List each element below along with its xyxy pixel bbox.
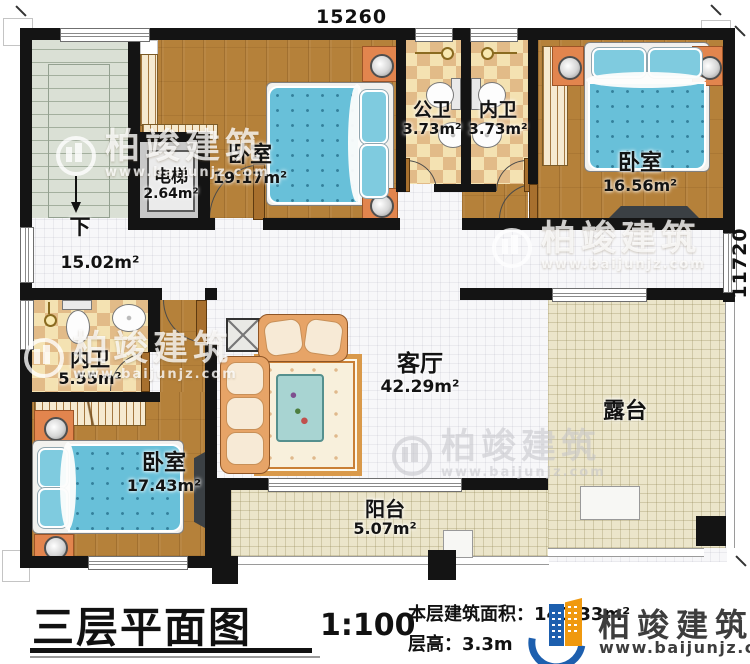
window-top-stairs xyxy=(60,28,150,42)
slider-living-balcony xyxy=(268,478,462,492)
wall-bedroom3-right xyxy=(205,344,217,556)
floor-height-label: 层高： xyxy=(408,634,462,655)
room-name: 公卫 xyxy=(398,100,466,121)
room-name: 卧室 xyxy=(190,144,310,169)
room-name: 内卫 xyxy=(465,100,531,121)
wall-hall-top-b xyxy=(263,218,400,230)
room-area: 5.55m² xyxy=(38,370,142,388)
post-balcony-mid xyxy=(428,550,456,580)
bedroom2-sheet-fold xyxy=(586,72,706,88)
room-name: 内卫 xyxy=(38,348,142,370)
balcony-label: 阳台 5.07m² xyxy=(328,498,442,538)
towel-ring xyxy=(441,47,454,60)
stair-rail xyxy=(48,64,110,218)
bedroom2-door xyxy=(529,184,538,220)
wall-living-bottom-b xyxy=(460,478,548,490)
floor-height-line: 层高：3.3m xyxy=(408,630,513,656)
bedroom2-label: 卧室 16.56m² xyxy=(575,152,705,195)
coffee-table xyxy=(276,374,324,442)
room-name: 阳台 xyxy=(328,498,442,520)
lamp-icon xyxy=(558,56,582,80)
leader-tick xyxy=(734,25,745,36)
terrace-label: 露台 xyxy=(588,400,662,425)
living-room-label: 客厅 42.29m² xyxy=(360,352,480,397)
room-name: 电梯 xyxy=(130,168,212,187)
room-area: 42.29m² xyxy=(360,378,480,397)
bedroom1-pillow xyxy=(360,90,388,144)
bedroom3-door xyxy=(196,300,207,344)
stairs-down-label: 下 xyxy=(66,216,94,240)
wall-bedroom2-bottom xyxy=(462,218,735,230)
window-bedroom3-bottom xyxy=(88,556,188,570)
plan-title: 三层平面图 xyxy=(32,594,252,655)
wall-ensuite-mid-bottom xyxy=(20,392,160,402)
ensuite-mid-door xyxy=(141,352,150,392)
window-top-ensuitebath xyxy=(470,28,518,42)
post-balcony-left xyxy=(212,556,238,584)
leader-tick xyxy=(710,4,721,15)
bedroom1-nightstand xyxy=(362,46,398,82)
window-left-ensuite xyxy=(20,300,34,350)
wall-bath-bottom-a xyxy=(434,184,462,192)
toilet-tank xyxy=(62,300,92,310)
lamp-icon xyxy=(44,417,68,441)
terrace-step xyxy=(580,486,640,520)
slider-living-terrace xyxy=(552,288,647,302)
wall-midrow-c xyxy=(460,288,552,300)
room-area: 2.64m² xyxy=(130,187,212,203)
dimension-top: 15260 xyxy=(316,6,387,28)
window-left-hall xyxy=(20,227,34,283)
elevator-label: 电梯 2.64m² xyxy=(130,168,212,203)
towel-ring xyxy=(481,47,494,60)
floor-area-line: 本层建筑面积：140.33m² xyxy=(408,600,630,626)
room-area: 5.07m² xyxy=(328,520,442,538)
room-area: 3.73m² xyxy=(465,121,531,138)
bedroom3-nightstand xyxy=(34,410,74,444)
wall-midrow-d xyxy=(645,288,735,300)
room-area: 17.43m² xyxy=(108,477,220,495)
public-bath-label: 公卫 3.73m² xyxy=(398,100,466,138)
wall-ensuite-mid-right xyxy=(148,300,160,352)
balcony-parapet xyxy=(231,556,549,565)
hallway-area-label: 15.02m² xyxy=(40,254,160,273)
floor-plan: 15260 11720 xyxy=(0,0,750,664)
bedroom3-label: 卧室 17.43m² xyxy=(108,452,220,495)
post-terrace-corner xyxy=(696,516,726,546)
ensuite-mid-label: 内卫 5.55m² xyxy=(38,348,142,388)
towel-bar xyxy=(415,52,443,54)
ensuite-mid-toilet xyxy=(66,310,90,344)
company-logo-building-blue xyxy=(549,604,564,646)
towel-bar xyxy=(48,302,50,314)
room-name: 卧室 xyxy=(108,452,220,477)
plan-scale: 1:100 xyxy=(320,608,416,643)
lamp-icon xyxy=(370,54,394,78)
wall-elevator-top xyxy=(128,132,208,142)
room-name: 卧室 xyxy=(575,152,705,177)
sofa-cushion xyxy=(226,397,264,430)
sofa-cushion xyxy=(226,432,264,465)
title-underline-thin xyxy=(30,656,320,658)
company-website: www.baijunjz.com xyxy=(599,638,750,657)
bedroom1-closet-v xyxy=(140,54,158,126)
room-area: 3.73m² xyxy=(398,121,466,138)
towel-ring xyxy=(44,314,57,327)
room-area: 16.56m² xyxy=(575,177,705,195)
bedroom3-sheet-fold xyxy=(60,442,76,530)
dimension-right: 11720 xyxy=(729,223,750,303)
leader-tick xyxy=(735,555,746,566)
bedroom2-nightstand xyxy=(552,46,584,86)
bedroom1-pillow xyxy=(360,144,388,198)
wall-midrow-a xyxy=(20,288,162,300)
corner-lamp-table xyxy=(226,318,260,352)
floor-height-value: 3.3m xyxy=(462,634,513,655)
wall-bedroom3-bottom-a xyxy=(20,556,88,568)
wall-midrow-b xyxy=(205,288,217,300)
stair-arrow-tip xyxy=(71,202,81,213)
window-top-publicbath xyxy=(415,28,453,42)
ensuite-mid-sink xyxy=(112,304,146,332)
sofa-cushion xyxy=(226,362,264,395)
ensuite-top-label: 内卫 3.73m² xyxy=(465,100,531,138)
stair-direction-arrow xyxy=(75,176,77,204)
terrace-parapet-right xyxy=(725,302,735,548)
terrace-parapet-bottom xyxy=(548,548,704,557)
floor-area-label: 本层建筑面积： xyxy=(408,604,534,625)
bedroom3-nightstand xyxy=(34,534,74,558)
sofa-cushion xyxy=(263,318,305,358)
room-name: 客厅 xyxy=(360,352,480,378)
leader-tick xyxy=(15,5,26,16)
wall-bath-bottom-b xyxy=(468,184,496,192)
sofa-cushion xyxy=(303,318,345,358)
title-underline xyxy=(30,648,312,653)
company-logo-building-orange xyxy=(565,598,582,646)
